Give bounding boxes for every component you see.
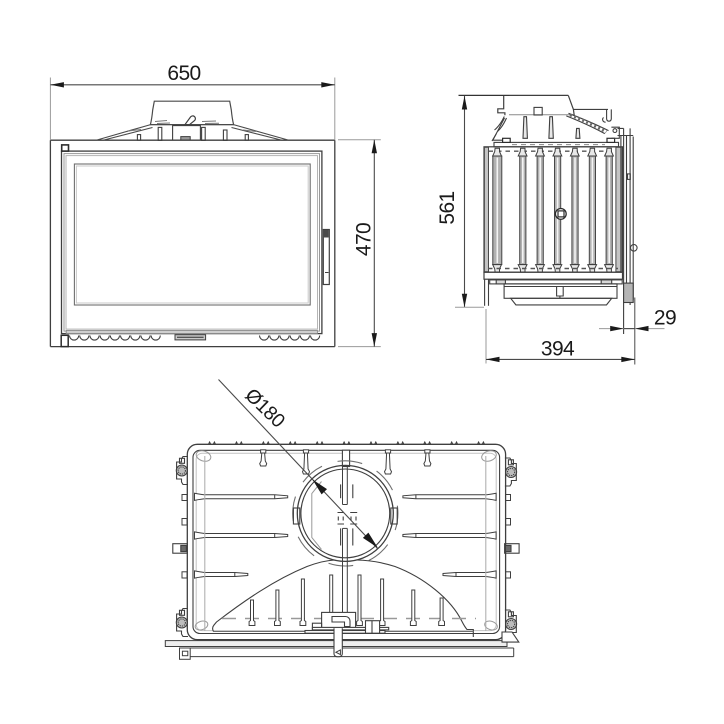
svg-text:650: 650 <box>167 62 200 85</box>
svg-text:561: 561 <box>436 191 459 224</box>
svg-text:470: 470 <box>352 223 375 256</box>
svg-text:394: 394 <box>541 338 575 361</box>
svg-text:29: 29 <box>654 307 676 330</box>
svg-text:Ø180: Ø180 <box>241 384 290 432</box>
